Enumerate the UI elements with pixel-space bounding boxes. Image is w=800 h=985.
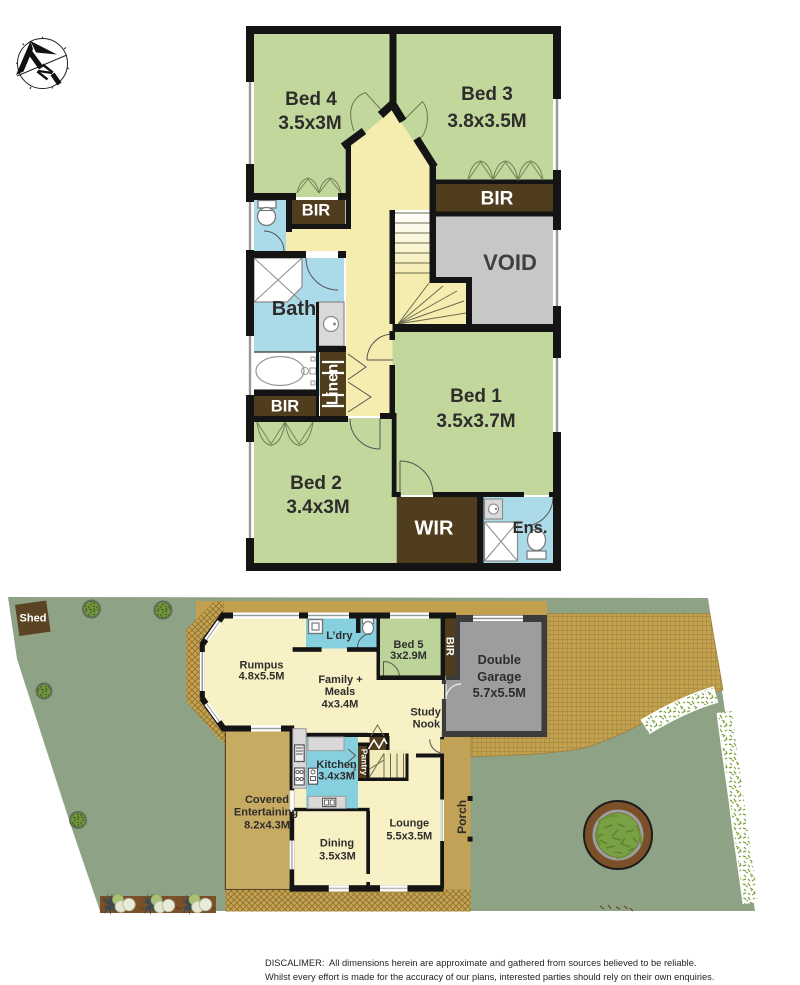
svg-text:4.8x5.5M: 4.8x5.5M: [239, 671, 285, 683]
svg-text:Dining: Dining: [320, 838, 354, 850]
svg-text:3.5x3M: 3.5x3M: [278, 113, 341, 134]
svg-text:3.5x3.7M: 3.5x3.7M: [436, 411, 515, 432]
svg-text:BIR: BIR: [444, 637, 456, 656]
svg-text:Linen: Linen: [325, 364, 342, 405]
svg-text:Bed 4: Bed 4: [285, 89, 337, 110]
svg-text:Study: Study: [410, 707, 441, 719]
svg-text:DISCALIMER: All dimensions he: DISCALIMER: All dimensions herein are ap…: [265, 958, 697, 968]
svg-text:4x3.4M: 4x3.4M: [322, 698, 359, 710]
svg-text:3.5x3M: 3.5x3M: [319, 851, 356, 863]
svg-text:8.2x4.3M: 8.2x4.3M: [244, 820, 290, 832]
svg-text:3.8x3.5M: 3.8x3.5M: [447, 111, 526, 132]
svg-text:Double: Double: [478, 652, 521, 667]
svg-text:Family +: Family +: [318, 674, 362, 686]
svg-text:Nook: Nook: [413, 719, 441, 731]
svg-text:5.7x5.5M: 5.7x5.5M: [473, 685, 526, 700]
svg-text:Porch: Porch: [455, 800, 469, 834]
svg-text:Meals: Meals: [325, 686, 356, 698]
svg-text:Covered: Covered: [245, 794, 289, 806]
svg-text:Ens.: Ens.: [513, 519, 548, 537]
svg-text:BIR: BIR: [302, 202, 331, 220]
svg-text:VOID: VOID: [483, 250, 537, 275]
svg-text:3x2.9M: 3x2.9M: [390, 650, 427, 662]
svg-text:Rumpus: Rumpus: [240, 659, 284, 671]
svg-text:BIR: BIR: [481, 189, 514, 210]
svg-text:L’dry: L’dry: [326, 630, 353, 642]
svg-text:Lounge: Lounge: [389, 818, 429, 830]
svg-text:WIR: WIR: [415, 518, 454, 540]
svg-text:Bed 3: Bed 3: [461, 84, 513, 105]
svg-text:3.4x3M: 3.4x3M: [318, 771, 355, 783]
svg-text:Bed 5: Bed 5: [394, 639, 424, 651]
svg-text:Bath: Bath: [272, 298, 316, 320]
svg-text:Entertaining: Entertaining: [234, 807, 298, 819]
svg-text:Bed 1: Bed 1: [450, 386, 502, 407]
svg-text:Bed 2: Bed 2: [290, 473, 342, 494]
svg-text:Kitchen: Kitchen: [316, 759, 357, 771]
svg-text:3.4x3M: 3.4x3M: [286, 497, 349, 518]
svg-text:5.5x3.5M: 5.5x3.5M: [386, 831, 432, 843]
svg-text:BIR: BIR: [271, 398, 300, 416]
svg-text:Whilst every effort is made fo: Whilst every effort is made for the accu…: [265, 972, 714, 982]
svg-text:Pantry: Pantry: [360, 749, 370, 776]
svg-text:Garage: Garage: [477, 669, 521, 684]
svg-text:Shed: Shed: [20, 613, 47, 625]
